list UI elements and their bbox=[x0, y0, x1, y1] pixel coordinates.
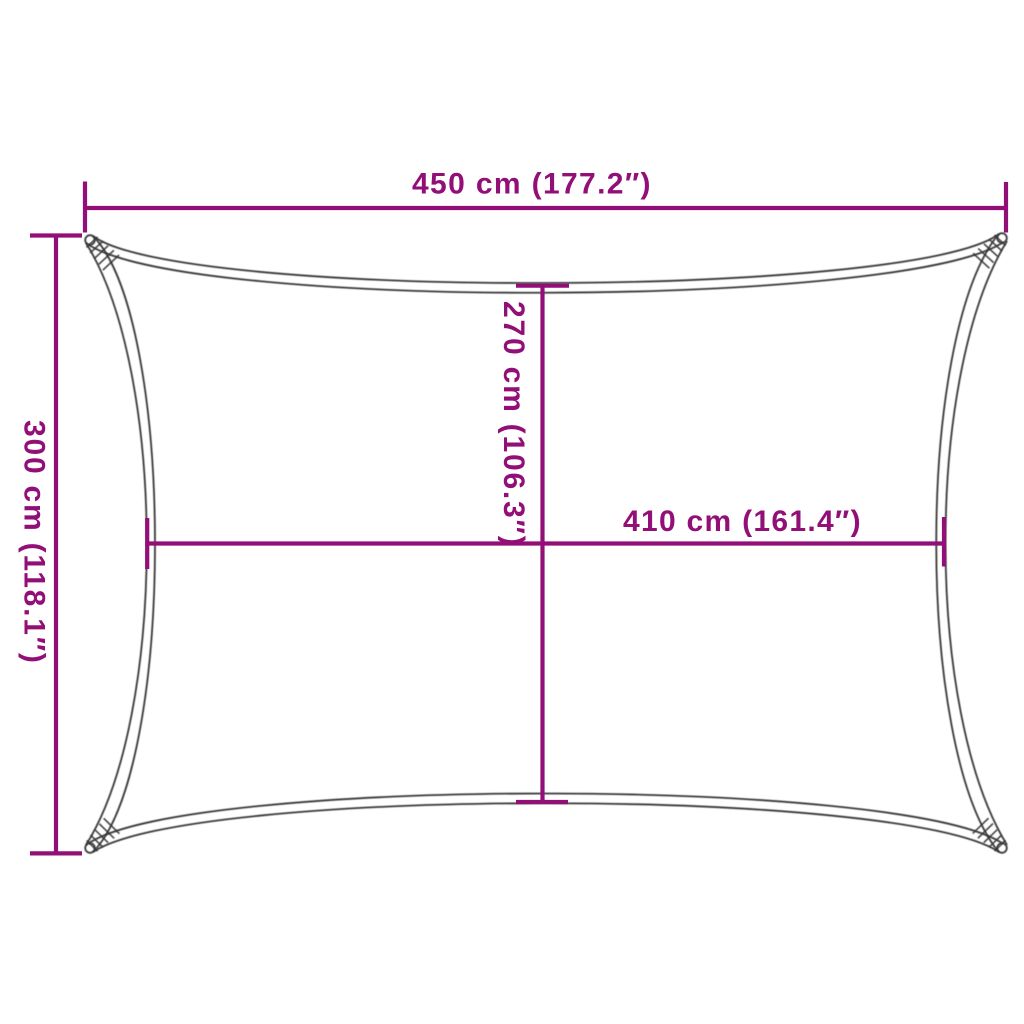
svg-text:270 cm (106.3″): 270 cm (106.3″) bbox=[497, 301, 530, 548]
svg-text:450 cm (177.2″): 450 cm (177.2″) bbox=[412, 168, 652, 201]
svg-text:300 cm (118.1″): 300 cm (118.1″) bbox=[18, 420, 51, 665]
svg-text:410 cm (161.4″): 410 cm (161.4″) bbox=[623, 505, 862, 538]
